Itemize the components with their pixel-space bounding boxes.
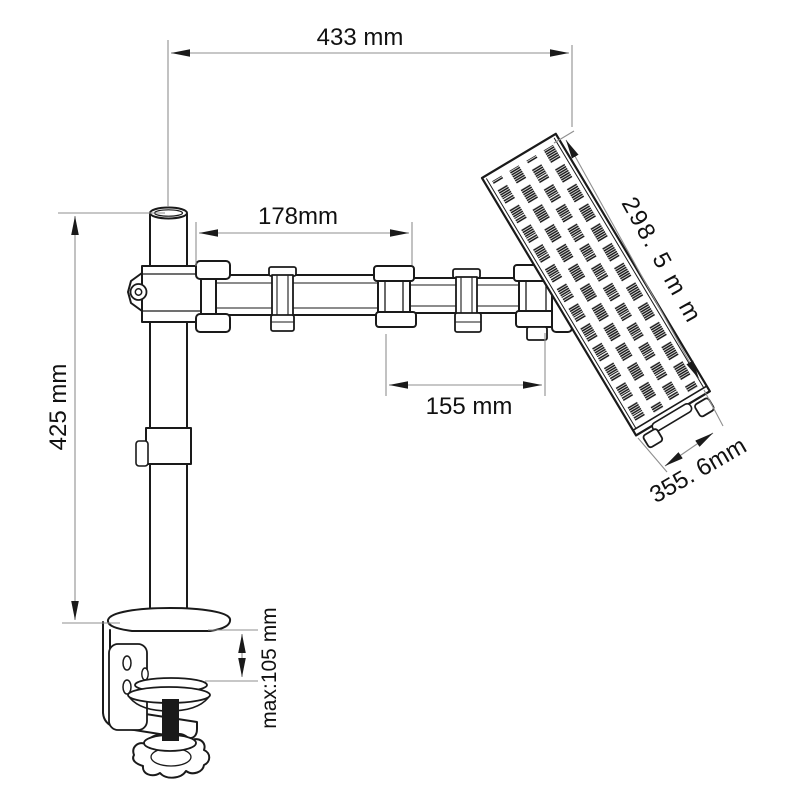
clamp-hole-1: [123, 656, 131, 670]
cable-clip-pole: [136, 441, 148, 466]
ext-lines-155: [386, 333, 545, 396]
arm1-body: [216, 275, 386, 315]
pole-sleeve: [146, 428, 191, 464]
ext-lines-105: [205, 630, 258, 681]
desk-clamp: [103, 608, 230, 778]
arm-segment-1: [216, 275, 386, 315]
tray-foot-left: [694, 397, 715, 417]
dim-label-155: 155 mm: [426, 393, 513, 420]
dimension-forearm: 155 mm: [386, 333, 545, 420]
elbow-joint: [374, 266, 416, 327]
technical-drawing-page: 433 mm 178mm 155 mm 425 mm max:105 mm 29…: [0, 0, 800, 800]
dim-label-433: 433 mm: [317, 24, 404, 51]
pole-collar: [128, 261, 230, 332]
wrist-bolt: [527, 327, 547, 340]
elbow-bottom-tab: [376, 312, 416, 327]
tray-foot-right: [642, 428, 663, 448]
shoulder-top-tab: [196, 261, 230, 279]
dim-label-105: max:105 mm: [258, 607, 281, 728]
threaded-shaft: [162, 699, 179, 741]
desk-mount-arm-drawing: 433 mm 178mm 155 mm 425 mm max:105 mm 29…: [0, 0, 800, 800]
shoulder-bottom-tab: [196, 314, 230, 332]
dim-label-425: 425 mm: [45, 364, 72, 451]
elbow-top-tab: [374, 266, 414, 281]
arm1-cable-clip: [269, 267, 296, 331]
clamp-hole-3: [142, 668, 148, 680]
dimension-upper-arm: 178mm: [196, 203, 412, 266]
clip1-band: [272, 275, 293, 316]
clip1-block: [271, 315, 294, 331]
clip2-band: [456, 277, 477, 314]
dim-label-178: 178mm: [258, 203, 338, 230]
arm2-cable-clip: [453, 269, 481, 332]
clamp-top-plate: [108, 608, 230, 631]
collar-bolt: [131, 284, 147, 300]
